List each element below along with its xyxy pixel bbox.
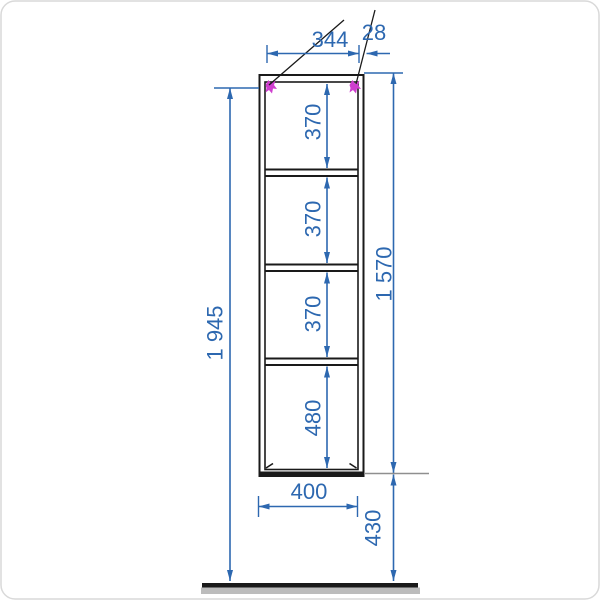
dim-label-shelf-gap-4: 480 xyxy=(301,400,326,437)
dim-label-floor-clearance: 430 xyxy=(361,510,386,547)
dim-inner-width: 344 xyxy=(267,27,359,63)
dim-unit-height: 1 570 xyxy=(364,73,403,473)
dim-label-outer-width: 400 xyxy=(291,479,328,504)
dim-label-overall-height: 1 945 xyxy=(203,305,228,360)
dim-shelf-gap-3: 370 xyxy=(301,273,328,358)
dim-label-shelf-gap-3: 370 xyxy=(301,296,326,333)
screenshot-canvas: 344 28 1 945 1 570 430 400 370 370 xyxy=(0,0,600,600)
dim-label-inner-width: 344 xyxy=(312,27,349,52)
floor-shadow xyxy=(201,588,420,595)
dim-outer-width: 400 xyxy=(259,479,358,517)
dim-floor-clearance: 430 xyxy=(361,475,394,582)
bottom-panel xyxy=(261,472,363,476)
technical-drawing: 344 28 1 945 1 570 430 400 370 370 xyxy=(0,0,600,600)
dim-label-shelf-gap-2: 370 xyxy=(301,201,326,238)
bottom-right-corner-tick xyxy=(350,464,357,469)
dim-label-panel-thickness: 28 xyxy=(362,20,386,45)
bottom-left-corner-tick xyxy=(266,464,273,469)
dim-shelf-gap-2: 370 xyxy=(301,178,328,264)
floor-line xyxy=(202,583,418,588)
dim-shelf-gap-4: 480 xyxy=(301,367,328,469)
dim-overall-height: 1 945 xyxy=(203,88,260,581)
dim-label-unit-height: 1 570 xyxy=(372,246,397,301)
dim-label-shelf-gap-1: 370 xyxy=(301,104,326,141)
floor xyxy=(201,583,420,594)
dim-shelf-gap-1: 370 xyxy=(301,84,328,168)
dim-panel-thickness: 28 xyxy=(362,20,390,54)
